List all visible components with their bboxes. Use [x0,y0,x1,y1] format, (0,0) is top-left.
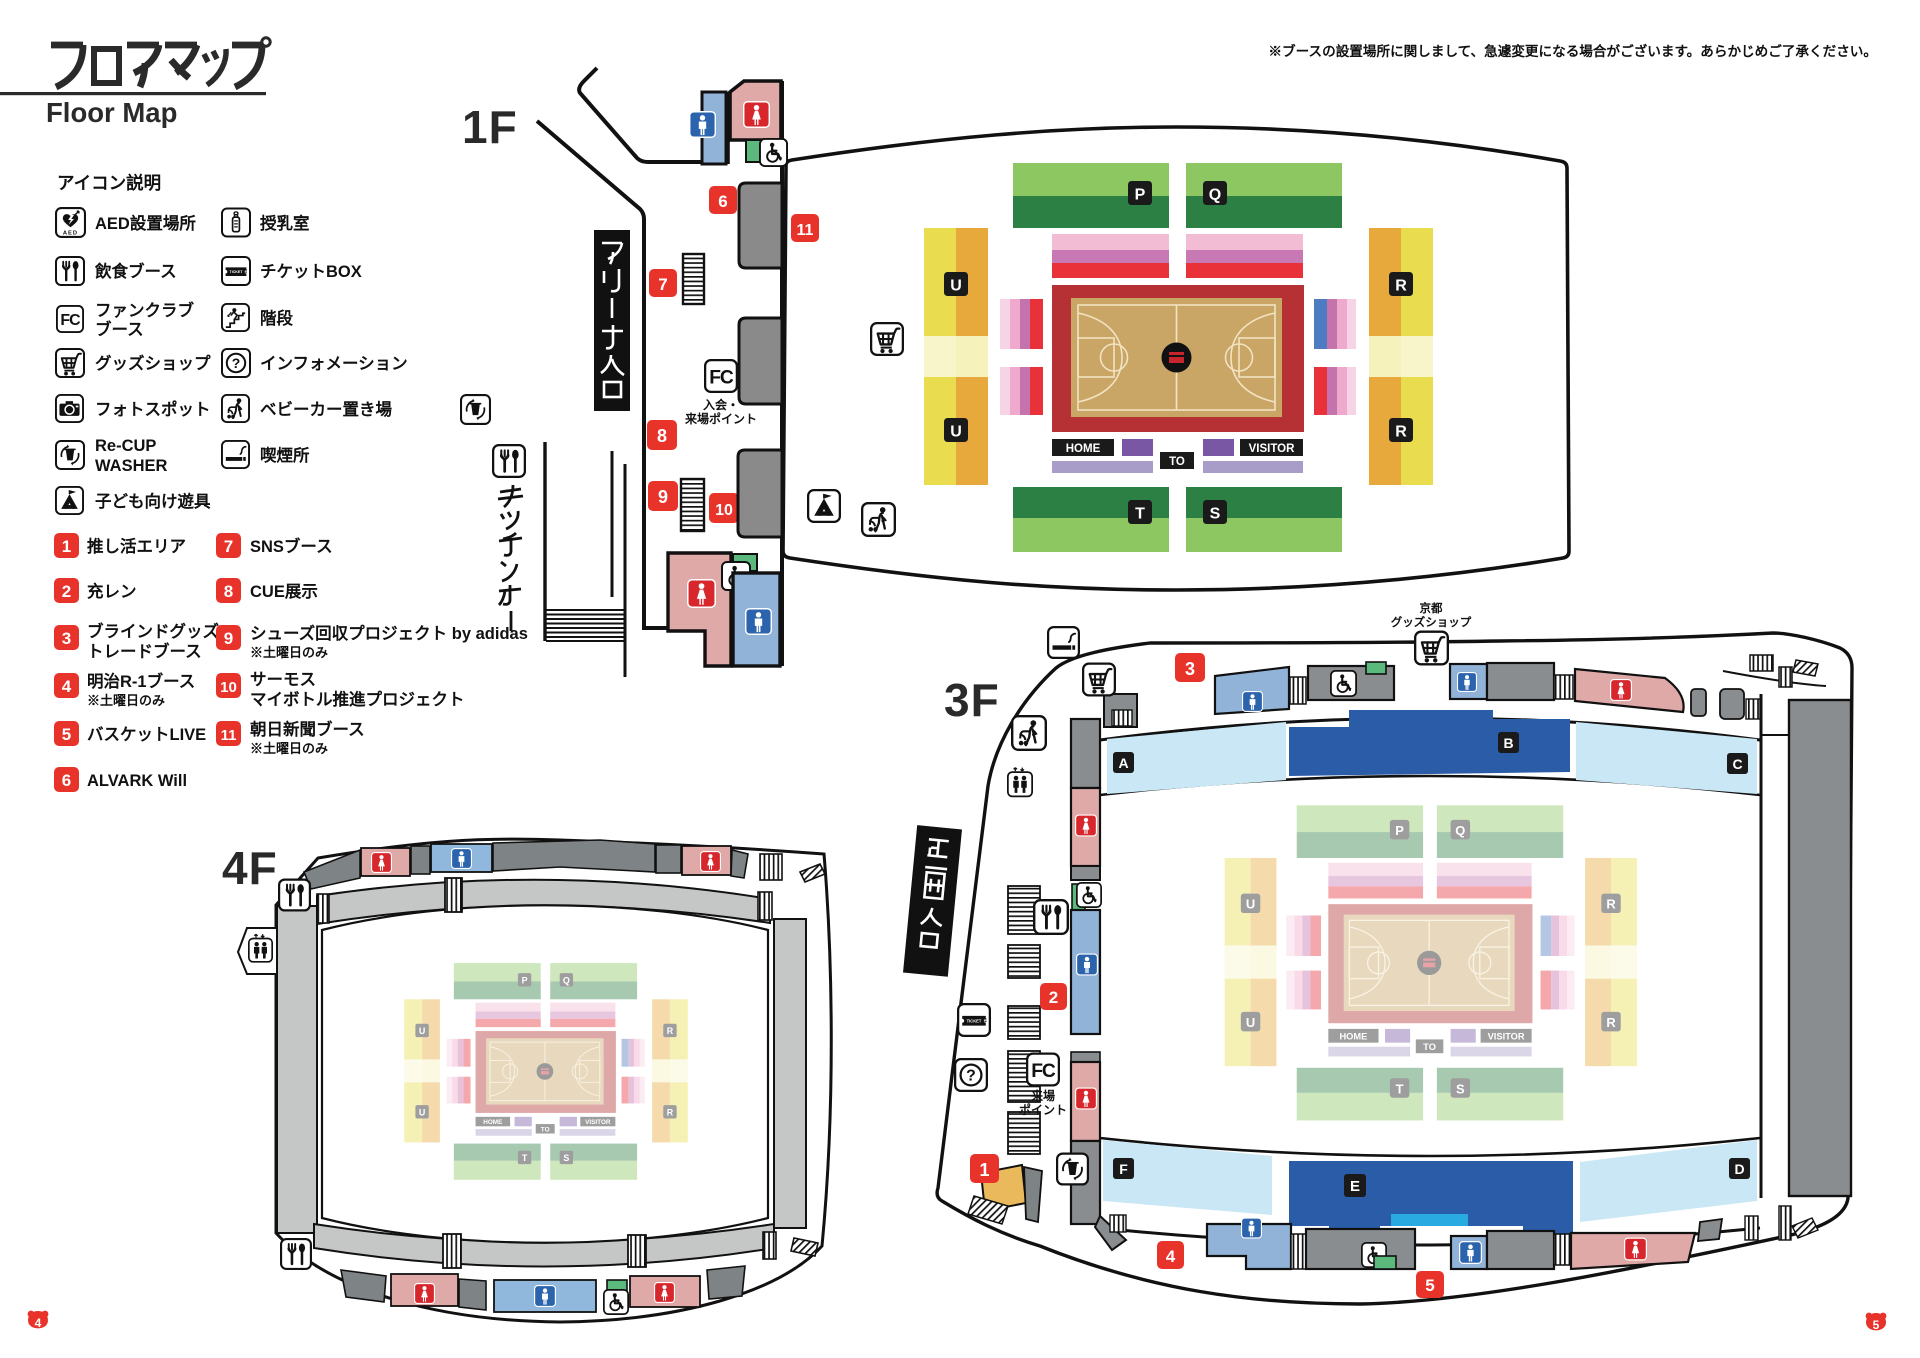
svg-text:階段: 階段 [260,308,294,328]
svg-text:8: 8 [657,426,667,446]
svg-text:4: 4 [1166,1247,1176,1266]
svg-text:バスケットLIVE: バスケットLIVE [87,725,206,744]
svg-text:SNSブース: SNSブース [250,536,333,556]
svg-text:チケットBOX: チケットBOX [260,262,362,281]
svg-text:4: 4 [35,1316,42,1330]
svg-text:喫煙所: 喫煙所 [260,446,310,465]
svg-text:11: 11 [797,222,814,239]
svg-text:グッズショップ: グッズショップ [1391,615,1472,629]
svg-text:フォトスポット: フォトスポット [95,399,211,419]
svg-text:4: 4 [62,677,72,696]
svg-text:WASHER: WASHER [95,457,168,475]
svg-text:※土曜日のみ: ※土曜日のみ [87,693,165,708]
svg-text:9: 9 [224,629,233,648]
svg-text:2: 2 [1049,988,1058,1007]
svg-text:4F: 4F [222,842,278,894]
svg-text:ポイント: ポイント [1019,1102,1067,1117]
svg-text:6: 6 [718,192,727,211]
svg-text:10: 10 [715,502,733,519]
svg-text:トレードブース: トレードブース [87,641,202,661]
svg-text:推し活エリア: 推し活エリア [87,536,186,556]
svg-text:CUE展示: CUE展示 [250,582,318,601]
svg-text:マイボトル推進プロジェクト: マイボトル推進プロジェクト [250,689,465,709]
svg-text:Floor Map: Floor Map [46,97,177,128]
svg-text:A: A [1118,755,1128,771]
svg-text:授乳室: 授乳室 [260,213,310,233]
svg-text:※土曜日のみ: ※土曜日のみ [250,645,328,660]
svg-text:2: 2 [62,582,71,601]
svg-text:3: 3 [62,629,71,648]
svg-text:アイコン説明: アイコン説明 [57,173,161,193]
svg-text:ベビーカー置き場: ベビーカー置き場 [260,400,393,419]
svg-text:ブラインドグッズ: ブラインドグッズ [87,621,220,641]
svg-text:6: 6 [62,771,71,790]
svg-text:来場: 来場 [1030,1088,1055,1103]
svg-text:子ども向け遊具: 子ども向け遊具 [95,491,211,511]
svg-text:サーモス: サーモス [250,671,316,689]
svg-text:飲食ブース: 飲食ブース [94,261,177,281]
svg-text:7: 7 [658,275,667,294]
svg-text:11: 11 [221,727,237,744]
svg-text:AED設置場所: AED設置場所 [95,213,196,233]
svg-text:3: 3 [1185,659,1195,679]
svg-text:9: 9 [658,487,668,507]
svg-text:朝日新聞ブース: 朝日新聞ブース [250,719,365,739]
svg-text:5: 5 [1425,1276,1434,1295]
svg-text:3F: 3F [944,674,1000,726]
svg-text:1: 1 [979,1160,989,1180]
svg-text:ブース: ブース [95,319,144,339]
svg-text:入会・: 入会・ [703,397,739,412]
svg-text:B: B [1503,735,1513,751]
svg-text:C: C [1732,756,1742,772]
svg-text:7: 7 [224,537,233,556]
svg-text:来場ポイント: 来場ポイント [684,411,757,426]
svg-text:1F: 1F [462,101,518,153]
svg-text:インフォメーション: インフォメーション [260,355,408,373]
svg-text:明治R-1ブース: 明治R-1ブース [87,671,195,691]
svg-text:5: 5 [1873,1318,1880,1332]
svg-text:Re-CUP: Re-CUP [95,437,156,455]
svg-text:8: 8 [224,582,233,601]
svg-text:5: 5 [62,725,71,744]
svg-text:D: D [1734,1161,1744,1177]
svg-text:ALVARK Will: ALVARK Will [87,772,187,790]
svg-text:※ブースの設置場所に関しまして、急遽変更になる場合がございま: ※ブースの設置場所に関しまして、急遽変更になる場合がございます。あらかじめご了承… [1268,43,1877,59]
svg-text:※土曜日のみ: ※土曜日のみ [250,741,328,756]
svg-text:京都: 京都 [1420,601,1443,615]
svg-text:ファンクラブ: ファンクラブ [95,300,195,320]
svg-text:1: 1 [62,537,71,556]
svg-text:10: 10 [220,679,237,696]
svg-text:E: E [1350,1178,1360,1195]
svg-text:充レン: 充レン [87,581,137,601]
svg-text:グッズショップ: グッズショップ [95,353,211,373]
svg-text:F: F [1119,1161,1128,1177]
svg-text:シューズ回収プロジェクト by adidas: シューズ回収プロジェクト by adidas [250,623,528,643]
